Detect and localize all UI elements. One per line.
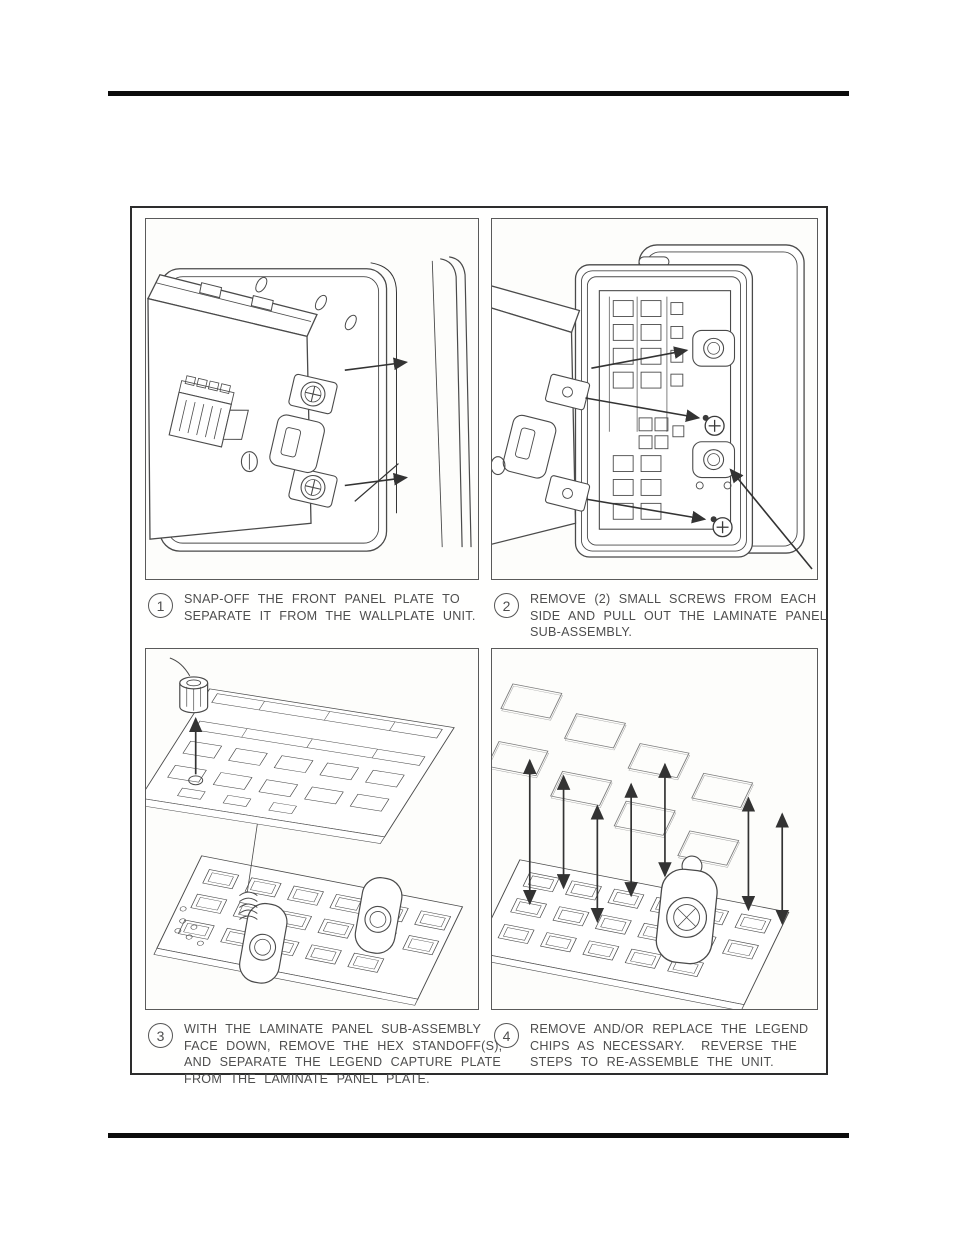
step2-caption: 2 REMOVE (2) SMALL SCREWS FROM EACH SIDE… — [494, 591, 824, 641]
caption-line: AND SEPARATE THE LEGEND CAPTURE PLATE — [184, 1054, 502, 1071]
step3-caption-text: WITH THE LAMINATE PANEL SUB-ASSEMBLY FAC… — [184, 1021, 502, 1087]
step4-panel — [491, 648, 818, 1010]
step2-panel — [491, 218, 818, 580]
step1-caption-text: SNAP-OFF THE FRONT PANEL PLATE TO SEPARA… — [184, 591, 476, 624]
wallplate-unit-box — [148, 275, 317, 539]
step3-number-badge: 3 — [148, 1023, 173, 1048]
caption-line: SIDE AND PULL OUT THE LAMINATE PANEL — [530, 608, 827, 625]
caption-line: REMOVE AND/OR REPLACE THE LEGEND — [530, 1021, 808, 1038]
caption-line: SEPARATE IT FROM THE WALLPLATE UNIT. — [184, 608, 476, 625]
step3-illustration — [146, 649, 478, 1009]
step2-number-badge: 2 — [494, 593, 519, 618]
hex-standoff — [170, 658, 208, 713]
step1-number-badge: 1 — [148, 593, 173, 618]
bottom-horizontal-rule — [108, 1133, 849, 1138]
caption-line: WITH THE LAMINATE PANEL SUB-ASSEMBLY — [184, 1021, 502, 1038]
step4-number-badge: 4 — [494, 1023, 519, 1048]
caption-line: REMOVE (2) SMALL SCREWS FROM EACH — [530, 591, 827, 608]
caption-line: STEPS TO RE-ASSEMBLE THE UNIT. — [530, 1054, 808, 1071]
legend-capture-plate — [492, 860, 789, 1009]
step3-panel — [145, 648, 479, 1010]
caption-line: SNAP-OFF THE FRONT PANEL PLATE TO — [184, 591, 476, 608]
caption-line: CHIPS AS NECESSARY. REVERSE THE — [530, 1038, 808, 1055]
step1-illustration — [146, 219, 478, 579]
manual-page: 1 SNAP-OFF THE FRONT PANEL PLATE TO SEPA… — [0, 0, 954, 1235]
step3-caption: 3 WITH THE LAMINATE PANEL SUB-ASSEMBLY F… — [148, 1021, 484, 1087]
caption-line: SUB-ASSEMBLY. — [530, 624, 827, 641]
laminate-panel-sub-assembly — [599, 291, 734, 530]
step4-illustration — [492, 649, 817, 1009]
legend-chips — [492, 684, 754, 867]
step1-caption: 1 SNAP-OFF THE FRONT PANEL PLATE TO SEPA… — [148, 591, 484, 624]
step4-caption-text: REMOVE AND/OR REPLACE THE LEGEND CHIPS A… — [530, 1021, 808, 1071]
laminate-panel-plate — [154, 856, 463, 1005]
caption-line: FACE DOWN, REMOVE THE HEX STANDOFF(S), — [184, 1038, 502, 1055]
caption-line: FROM THE LAMINATE PANEL PLATE. — [184, 1071, 502, 1088]
top-horizontal-rule — [108, 91, 849, 96]
step2-caption-text: REMOVE (2) SMALL SCREWS FROM EACH SIDE A… — [530, 591, 827, 641]
front-panel-plate-edge — [432, 257, 471, 547]
step4-caption: 4 REMOVE AND/OR REPLACE THE LEGEND CHIPS… — [494, 1021, 824, 1071]
step1-panel — [145, 218, 479, 580]
instruction-figure: 1 SNAP-OFF THE FRONT PANEL PLATE TO SEPA… — [130, 206, 828, 1075]
step2-illustration — [492, 219, 817, 579]
